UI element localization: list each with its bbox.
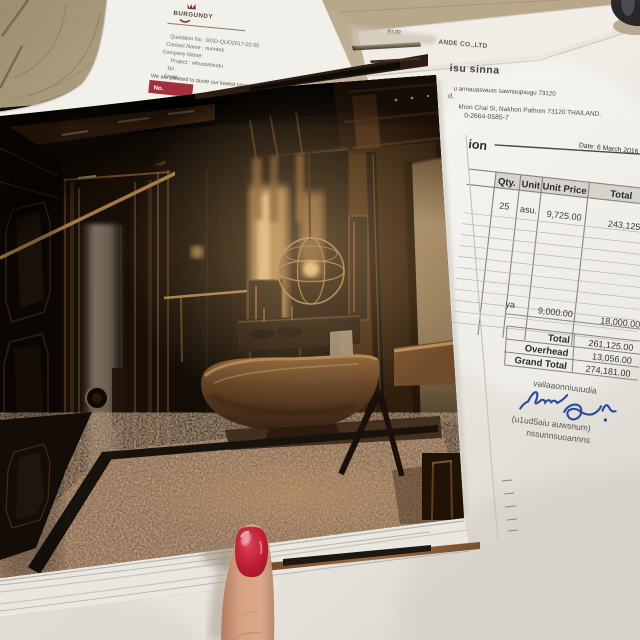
svg-text:Unit: Unit (521, 179, 541, 192)
svg-text:25: 25 (499, 201, 510, 212)
svg-text:No.: No. (153, 85, 164, 92)
svg-text:asu.: asu. (520, 204, 538, 216)
svg-text:Qty.: Qty. (497, 176, 516, 189)
svg-text:ion: ion (468, 137, 488, 153)
svg-text:Tel :: Tel : (166, 66, 176, 73)
svg-text:ya: ya (505, 299, 516, 310)
svg-text:d.: d. (448, 93, 454, 100)
